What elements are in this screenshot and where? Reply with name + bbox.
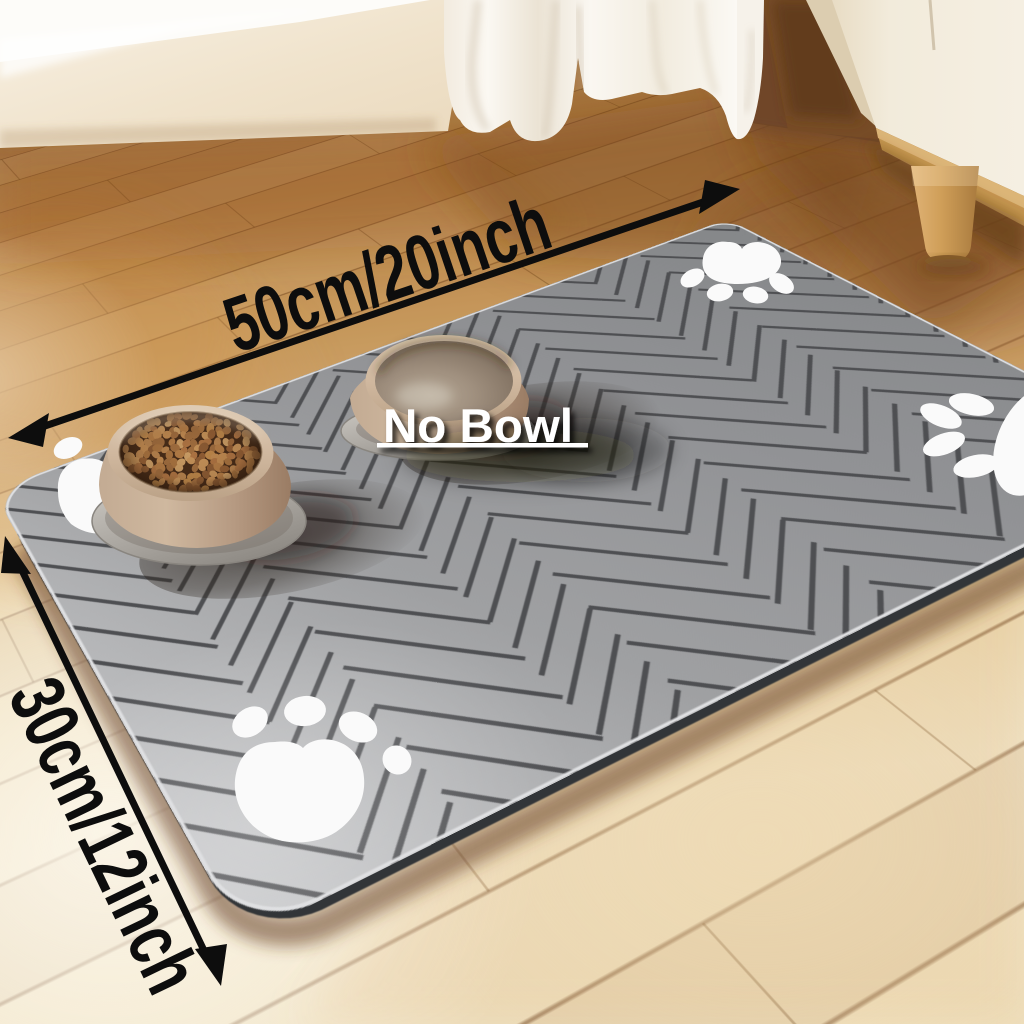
svg-text:30cm/12inch: 30cm/12inch <box>0 665 217 1007</box>
svg-text:50cm/20inch: 50cm/20inch <box>213 179 560 369</box>
